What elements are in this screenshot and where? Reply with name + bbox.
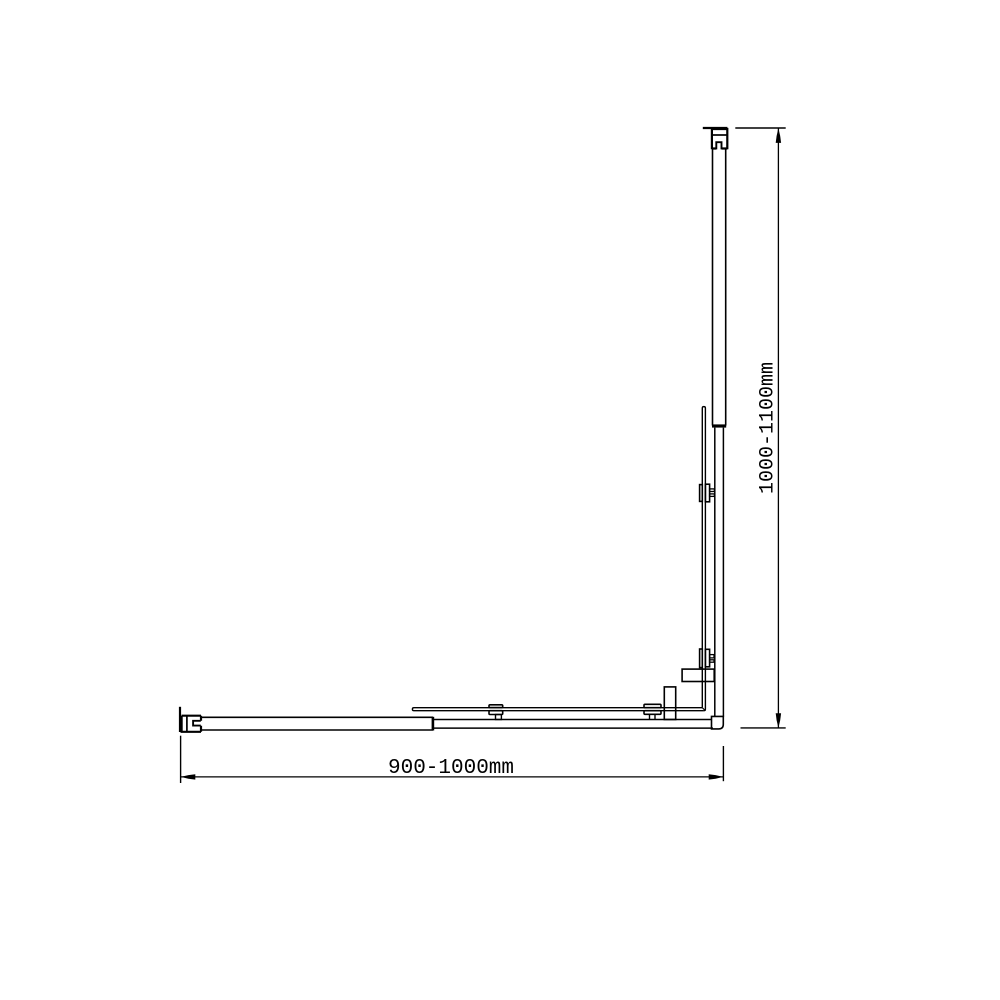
svg-text:900-1000mm: 900-1000mm (388, 757, 514, 780)
svg-text:1000-1100mm: 1000-1100mm (756, 362, 779, 494)
